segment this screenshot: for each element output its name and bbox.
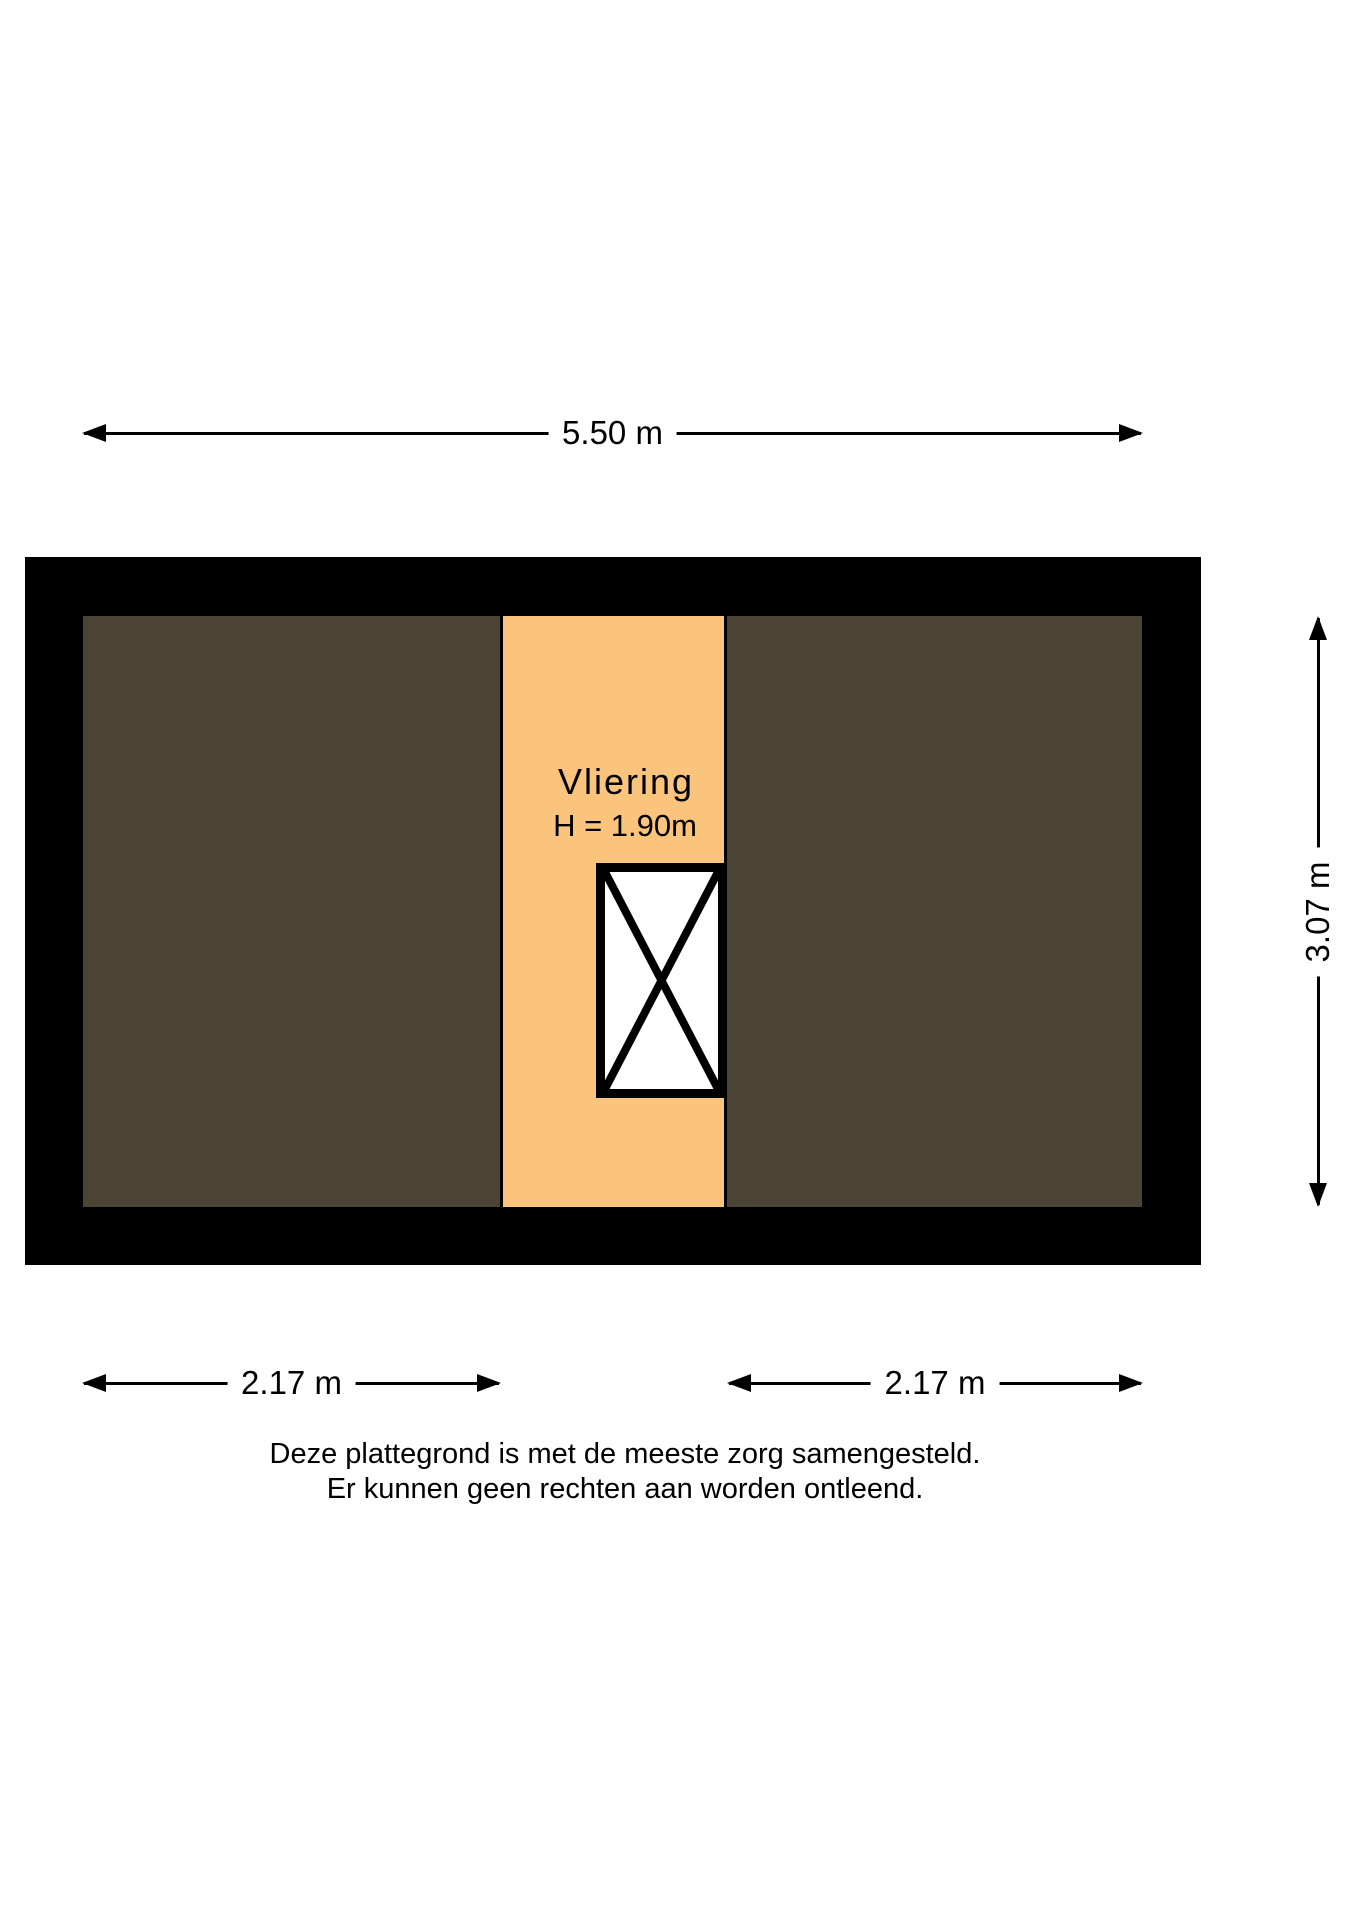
disclaimer: Deze plattegrond is met de meeste zorg s…: [0, 1437, 1250, 1507]
dimension-bottom-left: 2.17 m: [82, 1365, 501, 1401]
room-height-label: H = 1.90m: [553, 808, 697, 844]
arrow-up-icon: [1309, 616, 1327, 640]
dimension-label: 2.17 m: [871, 1362, 1000, 1404]
arrow-down-icon: [1309, 1183, 1327, 1207]
arrow-left-icon: [82, 1374, 106, 1392]
arrow-left-icon: [727, 1374, 751, 1392]
room-label: Vliering: [558, 761, 694, 803]
arrow-left-icon: [82, 424, 106, 442]
arrow-right-icon: [477, 1374, 501, 1392]
disclaimer-line-1: Deze plattegrond is met de meeste zorg s…: [0, 1437, 1250, 1472]
stair-opening: [596, 863, 727, 1098]
dimension-label: 5.50 m: [548, 412, 677, 454]
disclaimer-line-2: Er kunnen geen rechten aan worden ontlee…: [0, 1472, 1250, 1507]
dimension-top: 5.50 m: [82, 415, 1143, 451]
arrow-right-icon: [1119, 1374, 1143, 1392]
dimension-label: 2.17 m: [227, 1362, 356, 1404]
dimension-label: 3.07 m: [1297, 847, 1339, 976]
dimension-bottom-right: 2.17 m: [727, 1365, 1143, 1401]
floorplan-canvas: 5.50 m Vliering H = 1.90m 3.07 m 2.17 m …: [0, 0, 1358, 1920]
arrow-right-icon: [1119, 424, 1143, 442]
dimension-right: 3.07 m: [1300, 616, 1336, 1207]
